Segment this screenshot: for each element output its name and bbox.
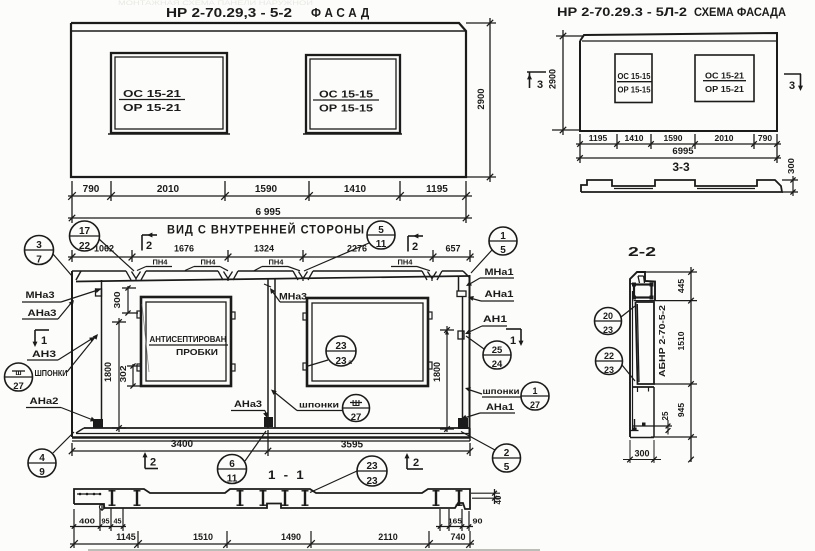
svg-text:23: 23 [335, 356, 347, 367]
svg-text:95: 95 [102, 517, 110, 526]
svg-text:2900: 2900 [548, 69, 558, 89]
svg-text:ШПОНКИ: ШПОНКИ [35, 368, 68, 378]
svg-text:3: 3 [537, 79, 543, 91]
svg-text:ОС 15-15: ОС 15-15 [618, 72, 652, 81]
svg-text:23: 23 [335, 341, 347, 352]
svg-text:1800: 1800 [103, 362, 113, 382]
svg-text:1 - 1: 1 - 1 [268, 468, 306, 482]
svg-text:а: а [348, 359, 352, 366]
svg-text:ВИД С ВНУТРЕННЕЙ СТОРОНЫ: ВИД С ВНУТРЕННЕЙ СТОРОНЫ [167, 224, 365, 237]
svg-text:11: 11 [376, 239, 387, 250]
svg-text:АНа3: АНа3 [28, 308, 57, 318]
svg-text:657: 657 [445, 244, 460, 254]
svg-text:945: 945 [676, 403, 686, 417]
svg-text:ПН4: ПН4 [201, 258, 217, 267]
svg-text:40: 40 [494, 495, 503, 504]
svg-text:2: 2 [413, 457, 419, 469]
svg-text:АНа1: АНа1 [486, 402, 514, 412]
svg-text:Ш: Ш [352, 399, 360, 408]
svg-text:3400: 3400 [171, 439, 194, 450]
svg-text:НР 2-70.29.3 - 5Л-2: НР 2-70.29.3 - 5Л-2 [557, 7, 687, 19]
svg-text:1: 1 [41, 335, 47, 347]
svg-text:2900: 2900 [476, 88, 487, 109]
svg-text:ОС 15-15: ОС 15-15 [319, 90, 374, 101]
svg-text:6: 6 [229, 459, 235, 470]
svg-text:27: 27 [13, 381, 24, 392]
svg-text:7: 7 [36, 254, 42, 265]
svg-text:МНа3: МНа3 [26, 290, 55, 300]
svg-text:АНа3: АНа3 [234, 399, 262, 409]
svg-text:1: 1 [510, 335, 516, 347]
svg-text:АБНР 2-70-5-2: АБНР 2-70-5-2 [658, 304, 667, 377]
svg-text:1195: 1195 [589, 133, 608, 143]
svg-text:АН1: АН1 [483, 314, 507, 324]
svg-text:АНТИСЕПТИРОВАН: АНТИСЕПТИРОВАН [150, 335, 227, 344]
svg-text:5: 5 [504, 462, 510, 473]
svg-text:23: 23 [604, 365, 614, 375]
svg-text:1: 1 [532, 386, 537, 396]
svg-text:27: 27 [351, 412, 362, 423]
svg-text:45: 45 [114, 517, 122, 526]
svg-text:1410: 1410 [625, 133, 644, 143]
svg-text:2010: 2010 [157, 184, 180, 195]
svg-text:1676: 1676 [174, 244, 194, 254]
svg-text:2010: 2010 [715, 133, 734, 143]
svg-text:24: 24 [492, 359, 503, 370]
svg-text:ОР 15-15: ОР 15-15 [319, 104, 374, 115]
svg-text:2110: 2110 [378, 532, 398, 542]
svg-text:27: 27 [530, 400, 540, 410]
svg-text:ФАСАД: ФАСАД [311, 6, 373, 20]
svg-text:4: 4 [39, 453, 45, 464]
svg-text:ОС 15-21: ОС 15-21 [123, 89, 182, 100]
svg-text:1324: 1324 [254, 244, 274, 254]
svg-text:2: 2 [504, 448, 510, 459]
svg-text:ОР 15-21: ОР 15-21 [123, 103, 182, 114]
svg-text:25: 25 [661, 411, 670, 420]
svg-text:СХЕМА ФАСАДА: СХЕМА ФАСАДА [694, 7, 786, 19]
svg-text:1195: 1195 [426, 184, 448, 195]
svg-text:3595: 3595 [341, 440, 364, 451]
svg-text:22: 22 [604, 351, 614, 361]
svg-text:400: 400 [79, 517, 95, 526]
svg-text:2-2: 2-2 [628, 244, 656, 259]
svg-text:5: 5 [500, 245, 506, 256]
svg-text:25: 25 [492, 345, 503, 356]
svg-text:165: 165 [448, 517, 462, 526]
svg-text:23: 23 [366, 461, 378, 472]
svg-text:ПРОБКИ: ПРОБКИ [176, 347, 218, 357]
svg-text:90: 90 [473, 517, 483, 526]
svg-text:790: 790 [758, 133, 772, 143]
svg-text:6995: 6995 [672, 146, 694, 157]
svg-text:МНа1: МНа1 [485, 267, 514, 277]
svg-text:3-3: 3-3 [672, 160, 690, 174]
svg-text:23: 23 [366, 476, 378, 487]
svg-text:НР 2-70.29,3 - 5-2: НР 2-70.29,3 - 5-2 [166, 6, 292, 20]
svg-text:1145: 1145 [116, 532, 136, 542]
svg-text:ПН4: ПН4 [153, 258, 169, 267]
svg-text:ш: ш [15, 368, 21, 377]
svg-text:ОС 15-21: ОС 15-21 [705, 72, 745, 81]
svg-text:1510: 1510 [676, 331, 686, 350]
svg-text:АНа2: АНа2 [30, 396, 59, 406]
svg-text:11: 11 [227, 473, 238, 484]
svg-text:6 995: 6 995 [255, 207, 280, 218]
svg-text:ОР 15-21: ОР 15-21 [705, 85, 745, 94]
svg-text:23: 23 [603, 325, 613, 335]
svg-text:1410: 1410 [344, 184, 367, 195]
svg-text:22: 22 [79, 241, 91, 252]
svg-text:АНа1: АНа1 [485, 289, 514, 299]
svg-text:ПН4: ПН4 [398, 258, 414, 267]
svg-text:1590: 1590 [255, 184, 278, 195]
svg-text:шпонки: шпонки [483, 386, 520, 396]
svg-text:2: 2 [150, 457, 156, 469]
svg-text:1: 1 [500, 231, 506, 242]
svg-text:1510: 1510 [193, 532, 213, 542]
svg-text:300: 300 [634, 449, 649, 459]
svg-text:740: 740 [450, 532, 465, 542]
svg-text:1490: 1490 [281, 532, 301, 542]
svg-text:5: 5 [378, 225, 384, 236]
svg-text:1800: 1800 [432, 362, 442, 382]
svg-text:шпонки: шпонки [299, 400, 339, 410]
svg-text:АН3: АН3 [32, 349, 56, 359]
svg-text:ОР 15-15: ОР 15-15 [618, 86, 652, 95]
svg-text:300: 300 [786, 158, 796, 174]
svg-text:ПН4: ПН4 [269, 258, 285, 267]
svg-text:3: 3 [36, 240, 42, 251]
svg-text:2: 2 [412, 241, 418, 253]
svg-text:445: 445 [676, 279, 686, 293]
svg-text:20: 20 [603, 311, 613, 321]
svg-text:9: 9 [39, 467, 45, 478]
svg-text:3: 3 [789, 80, 795, 92]
svg-text:790: 790 [83, 184, 100, 195]
svg-text:2: 2 [146, 240, 152, 252]
svg-text:17: 17 [79, 226, 91, 237]
svg-text:300: 300 [112, 291, 122, 308]
svg-text:МНа3: МНа3 [279, 292, 307, 302]
svg-text:1590: 1590 [664, 133, 683, 143]
